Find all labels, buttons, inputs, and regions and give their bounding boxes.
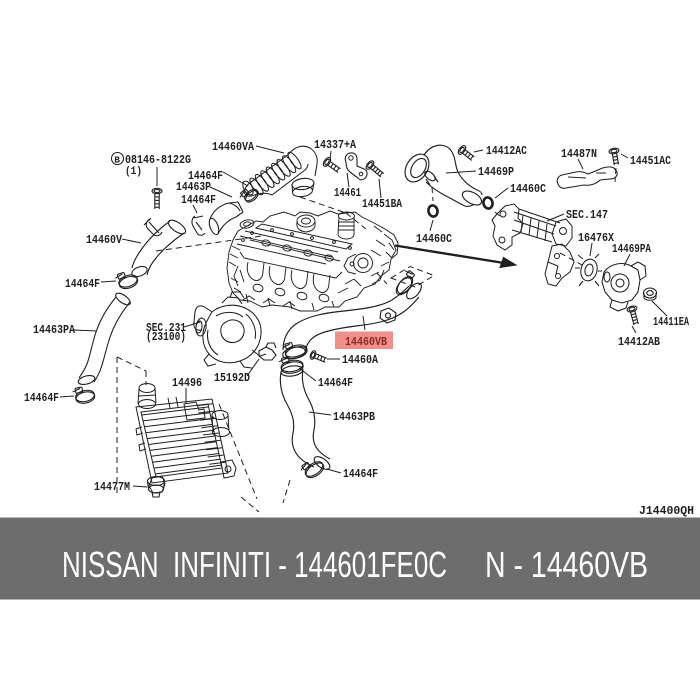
svg-text:14464F: 14464F: [24, 391, 59, 405]
svg-text:14451BA: 14451BA: [362, 197, 403, 211]
svg-text:14469P: 14469P: [478, 165, 514, 179]
svg-text:14496: 14496: [172, 376, 202, 390]
svg-text:14337+A: 14337+A: [314, 138, 357, 152]
svg-text:14463P: 14463P: [176, 180, 211, 194]
svg-text:15192D: 15192D: [214, 371, 250, 385]
svg-text:SEC.147: SEC.147: [566, 208, 608, 222]
svg-text:14460C: 14460C: [510, 182, 546, 196]
svg-text:14412AB: 14412AB: [618, 335, 661, 349]
svg-text:14464F: 14464F: [181, 193, 216, 207]
svg-text:14461: 14461: [334, 186, 361, 200]
svg-text:14463PB: 14463PB: [333, 410, 376, 424]
svg-text:J14400QH: J14400QH: [639, 505, 694, 518]
svg-text:14463PA: 14463PA: [33, 323, 76, 337]
svg-text:14464F: 14464F: [343, 467, 378, 481]
svg-text:(23100): (23100): [146, 330, 186, 344]
svg-text:14411EA: 14411EA: [653, 315, 689, 329]
svg-text:14460A: 14460A: [342, 353, 379, 367]
svg-text:16476X: 16476X: [578, 231, 615, 245]
svg-text:14451AC: 14451AC: [630, 154, 671, 168]
svg-text:N - 14460VB: N - 14460VB: [485, 544, 648, 585]
svg-text:B: B: [114, 155, 120, 166]
svg-text:14477M: 14477M: [94, 480, 130, 494]
svg-text:08146-8122G: 08146-8122G: [125, 153, 191, 167]
svg-text:(1): (1): [125, 166, 142, 178]
svg-text:14464F: 14464F: [65, 277, 100, 291]
svg-text:14460VB: 14460VB: [345, 335, 388, 349]
svg-text:14469PA: 14469PA: [612, 242, 652, 256]
svg-text:14487N: 14487N: [561, 147, 597, 161]
svg-text:NISSAN INFINITI - 144601FE0C: NISSAN INFINITI - 144601FE0C: [62, 544, 447, 585]
svg-text:14464F: 14464F: [318, 376, 353, 390]
svg-text:14460VA: 14460VA: [212, 140, 255, 154]
svg-text:14460C: 14460C: [416, 232, 452, 246]
svg-text:14460V: 14460V: [86, 233, 123, 247]
svg-text:14412AC: 14412AC: [486, 144, 527, 158]
